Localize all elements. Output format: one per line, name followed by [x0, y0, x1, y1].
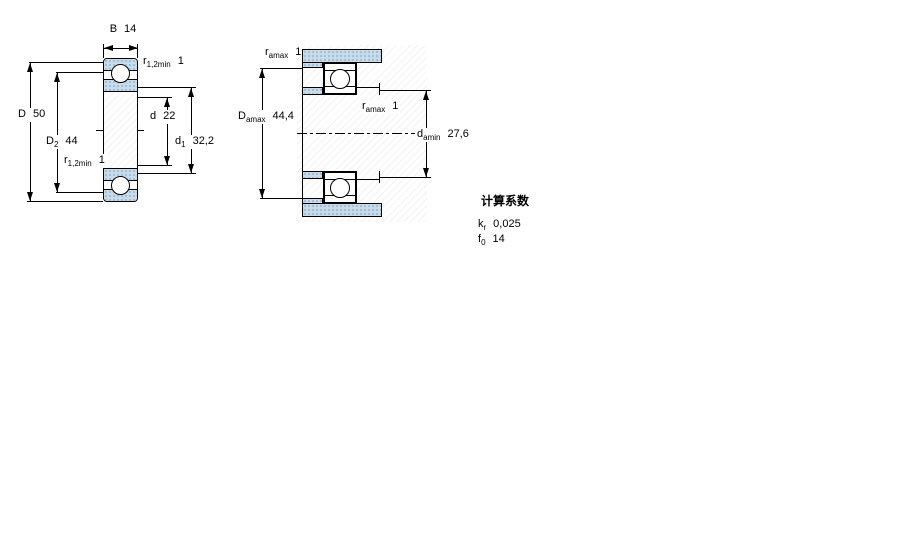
extension-line-D-top [29, 62, 103, 63]
dim-value: 1 [99, 154, 105, 166]
dim-value: 22 [163, 110, 175, 122]
dimension-line-D [30, 62, 31, 201]
extension-line-D-bottom [27, 201, 103, 202]
arrowhead-Damax-bottom [259, 189, 265, 198]
dim-value: 14 [124, 23, 136, 35]
dim-subscript: 1,2min [68, 159, 92, 168]
arrowhead-d1-bottom [188, 164, 194, 173]
dim-label-fillet-housing: ramax1 [263, 46, 303, 60]
extension-line-D2-bottom [56, 192, 103, 193]
mounted-bearing-top-section [323, 62, 357, 95]
arrowhead-D2-top [54, 73, 60, 82]
dim-symbol: d [150, 110, 156, 122]
dim-subscript: 2 [54, 140, 58, 149]
bearing-drawing-canvas: B14 r1,2min1 D50 D244 r1,2min1 d22 d132,… [0, 0, 900, 560]
extension-line-Damax-top [260, 68, 302, 69]
dim-value: 32,2 [193, 135, 214, 147]
dimension-line-d1 [191, 87, 192, 173]
dim-label-fillet-top: r1,2min1 [141, 55, 186, 69]
extension-line-Damax-bottom [260, 198, 302, 199]
housing-block-top [302, 49, 382, 63]
dim-symbol: D [238, 110, 246, 122]
dim-subscript: amax [246, 115, 266, 124]
dim-symbol: D [46, 135, 54, 147]
right-drawing-background [297, 45, 427, 222]
factor-row-kr: kr0,025 [478, 218, 521, 232]
shaft-shoulder-top [302, 87, 323, 95]
factor-row-f0: f014 [478, 233, 505, 247]
dimension-line-Damax [262, 68, 263, 198]
dim-label-shoulder-diameter: d132,2 [173, 135, 216, 149]
dim-subscript: amax [366, 105, 386, 114]
housing-block-bottom [302, 203, 382, 217]
dim-subscript: amax [269, 51, 289, 60]
arrowhead-D-bottom [27, 192, 33, 201]
shaft-shoulder-bottom [302, 171, 323, 179]
arrowhead-b-right [129, 45, 138, 51]
housing-shoulder-lip-top [302, 62, 323, 68]
ball-bottom [111, 176, 130, 195]
dim-value: 50 [33, 108, 45, 120]
arrowhead-b-left [104, 45, 113, 51]
ball-top [111, 64, 130, 83]
dim-subscript: amin [423, 133, 440, 142]
left-bearing-cross-section [103, 58, 138, 202]
dim-label-bore-diameter: d22 [148, 110, 177, 124]
housing-shoulder-lip-bottom [302, 198, 323, 204]
dim-label-housing-shoulder-diameter: Damax44,4 [236, 110, 296, 124]
dim-subscript: 1,2min [147, 60, 171, 69]
factor-value: 0,025 [493, 218, 521, 230]
arrowhead-D2-bottom [54, 183, 60, 192]
ball-bottom-right-drawing [330, 178, 350, 198]
mounted-bearing-bottom-section [323, 171, 357, 204]
arrowhead-d-top [164, 98, 170, 107]
arrowhead-d-bottom [164, 156, 170, 165]
arrowhead-D-top [27, 63, 33, 72]
extension-line-D2-top [56, 72, 103, 73]
dim-label-outer-diameter: D50 [16, 108, 47, 122]
dim-label-recess-diameter: D244 [44, 135, 80, 149]
dim-label-fillet-bottom: r1,2min1 [62, 154, 107, 168]
arrowhead-d1-top [188, 88, 194, 97]
dim-value: 1 [392, 100, 398, 112]
dim-symbol: B [110, 23, 117, 35]
arrowhead-Damax-top [259, 69, 265, 78]
factor-subscript: r [484, 223, 487, 232]
dim-value: 1 [295, 46, 301, 58]
shaft-surface-line-top [357, 87, 380, 88]
dim-value: 1 [178, 55, 184, 67]
dim-value: 44,4 [273, 110, 294, 122]
factor-value: 14 [493, 233, 505, 245]
dim-label-fillet-shaft: ramax1 [360, 100, 400, 114]
dim-value: 44 [65, 135, 77, 147]
dimension-line-D2 [57, 72, 58, 192]
extension-line-d1-bottom [137, 173, 196, 174]
shaft-surface-line-bottom [357, 179, 380, 180]
arrowhead-damin-top [423, 91, 429, 100]
calculation-factors-title: 计算系数 [481, 192, 529, 209]
extension-line-damin-bottom [379, 177, 431, 178]
arrowhead-damin-bottom [423, 168, 429, 177]
dim-label-shaft-shoulder-diameter: damin27,6 [415, 128, 471, 142]
dim-symbol: D [18, 108, 26, 120]
ball-top-right-drawing [330, 69, 350, 89]
dim-label-width: B14 [104, 23, 142, 37]
dim-value: 27,6 [447, 128, 468, 140]
factor-subscript: 0 [481, 238, 485, 247]
dim-subscript: 1 [181, 140, 185, 149]
